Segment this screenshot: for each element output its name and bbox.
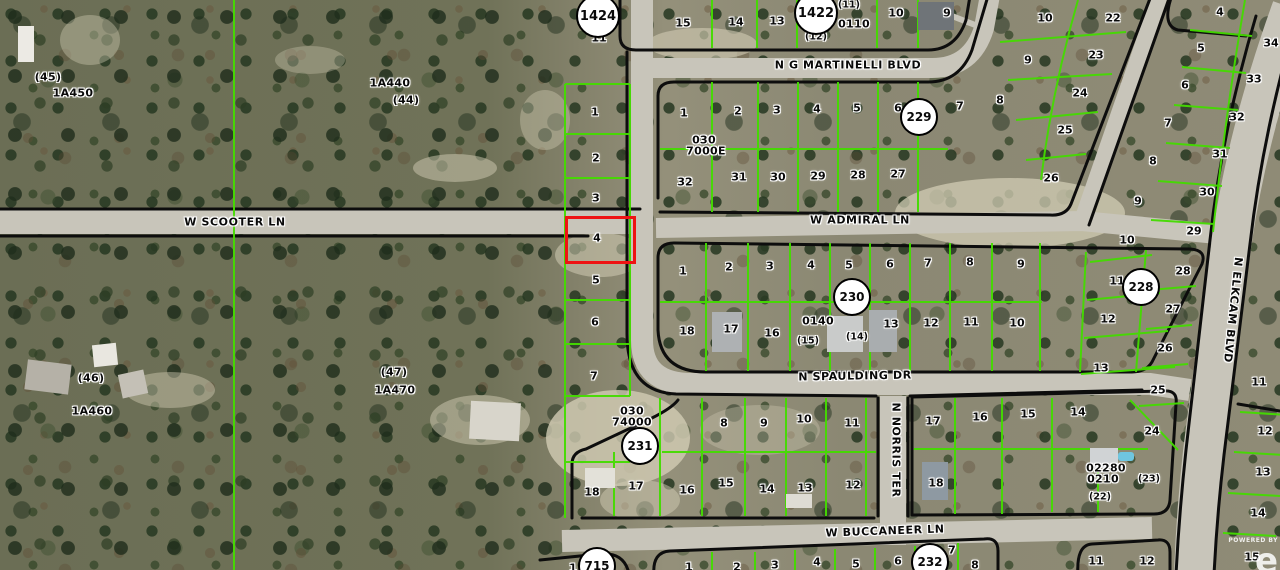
lot-number: 10 — [1119, 234, 1134, 247]
lot-number: 18 — [584, 486, 599, 499]
parcel-map: 11151413(11)(12)109102292382425264345336… — [0, 0, 1280, 570]
area-label: 1A450 — [53, 87, 94, 100]
lot-number: 16 — [679, 484, 694, 497]
area-label: 0110 — [838, 18, 870, 31]
lot-number: 6 — [886, 258, 894, 271]
lot-number: 10 — [796, 413, 811, 426]
lot-number: 31 — [731, 171, 746, 184]
lot-number: 32 — [1229, 111, 1244, 124]
lot-number: 3 — [771, 559, 779, 570]
lot-number: 16 — [764, 327, 779, 340]
area-label: (45) — [35, 71, 62, 84]
lot-number: (14) — [846, 332, 868, 343]
lot-number: 2 — [734, 105, 742, 118]
lot-number: 9 — [1024, 54, 1032, 67]
lot-number: 16 — [972, 411, 987, 424]
lot-number: 13 — [1093, 362, 1108, 375]
lot-number: 9 — [760, 417, 768, 430]
lot-number: 29 — [1186, 225, 1201, 238]
lot-number: 7 — [590, 370, 598, 383]
street-label: W ADMIRAL LN — [810, 214, 910, 227]
lot-number: 26 — [1157, 342, 1172, 355]
lot-number: 12 — [923, 317, 938, 330]
lot-number: 5 — [853, 102, 861, 115]
lot-number: 5 — [852, 558, 860, 570]
lot-number: 13 — [1255, 466, 1270, 479]
street-label: W SCOOTER LN — [184, 216, 285, 229]
lot-number: 34 — [1263, 37, 1278, 50]
lot-number: 3 — [773, 104, 781, 117]
lot-number: 5 — [845, 259, 853, 272]
lot-number: 10 — [888, 7, 903, 20]
lot-number: 23 — [1088, 49, 1103, 62]
lot-number: 7 — [956, 100, 964, 113]
lot-number: 1 — [679, 265, 687, 278]
lot-number: 11 — [963, 316, 978, 329]
lot-number: 30 — [1199, 186, 1214, 199]
lot-number: 12 — [1257, 425, 1272, 438]
lot-number: 11 — [1251, 376, 1266, 389]
lot-number: 5 — [1197, 42, 1205, 55]
lot-number: 13 — [769, 15, 784, 28]
lot-number: 4 — [807, 259, 815, 272]
area-label: 1A460 — [72, 405, 113, 418]
lot-number: 18 — [928, 477, 943, 490]
lot-number: 30 — [770, 171, 785, 184]
lot-number: (15) — [797, 336, 819, 347]
lot-number: 5 — [592, 274, 600, 287]
lot-number: 29 — [810, 170, 825, 183]
lot-number: 2 — [592, 152, 600, 165]
lot-number: 1 — [591, 106, 599, 119]
lot-number: 15 — [675, 17, 690, 30]
lot-number: 24 — [1144, 425, 1159, 438]
lot-number: 8 — [966, 256, 974, 269]
lot-number: 9 — [1134, 195, 1142, 208]
lot-number: 12 — [1139, 555, 1154, 568]
lot-number: 8 — [996, 94, 1004, 107]
lot-number: 1 — [680, 107, 688, 120]
area-label: 1A470 — [375, 384, 416, 397]
parcel-badge: 228 — [1122, 268, 1160, 306]
street-label: N SPAULDING DR — [798, 369, 912, 384]
lot-number: 17 — [723, 323, 738, 336]
lot-number: 9 — [1017, 258, 1025, 271]
lot-number: 1 — [685, 561, 693, 570]
lot-number: 14 — [1250, 507, 1265, 520]
lot-number: 2 — [733, 561, 741, 570]
mls-logo: e — [1228, 544, 1278, 570]
lot-number: 4 — [813, 556, 821, 569]
lot-number: 10 — [1037, 12, 1052, 25]
lot-number: 4 — [813, 103, 821, 116]
lot-number: 3 — [592, 192, 600, 205]
area-label: 0140 — [802, 315, 834, 328]
area-label: (47) — [381, 366, 408, 379]
lot-number: 28 — [1175, 265, 1190, 278]
lot-number: 25 — [1150, 384, 1165, 397]
area-label: (46) — [78, 372, 105, 385]
lot-number: (11) — [838, 0, 860, 11]
lot-number: 15 — [1020, 408, 1035, 421]
area-label: 1A440 — [370, 77, 411, 90]
lot-number: 1 — [569, 562, 577, 570]
lot-number: 14 — [759, 483, 774, 496]
parcel-badge: 230 — [833, 278, 871, 316]
lot-number: 25 — [1057, 124, 1072, 137]
lot-number: 13 — [883, 318, 898, 331]
lot-number: 6 — [894, 555, 902, 568]
lot-number: 27 — [890, 168, 905, 181]
lot-number: 22 — [1105, 12, 1120, 25]
lot-number: 6 — [591, 316, 599, 329]
parcel-badge: 231 — [621, 427, 659, 465]
lot-number: 24 — [1072, 87, 1087, 100]
lot-number: 7 — [924, 257, 932, 270]
area-label: (44) — [393, 94, 420, 107]
lot-number: 14 — [1070, 406, 1085, 419]
subject-parcel-highlight[interactable] — [565, 216, 636, 264]
lot-number: 9 — [943, 7, 951, 20]
area-label: 0210 — [1087, 473, 1119, 486]
lot-number: 10 — [1009, 317, 1024, 330]
lot-number: 12 — [845, 479, 860, 492]
lot-number: 12 — [1100, 313, 1115, 326]
lot-number: 11 — [1088, 555, 1103, 568]
lot-number: 32 — [677, 176, 692, 189]
lot-number: 26 — [1043, 172, 1058, 185]
lot-number: 3 — [766, 260, 774, 273]
mls-watermark: POWERED BY e — [1228, 538, 1278, 570]
lot-number: (23) — [1138, 474, 1160, 485]
lot-number: 2 — [725, 261, 733, 274]
lot-number: 18 — [679, 325, 694, 338]
lot-number: 8 — [720, 417, 728, 430]
street-label: N G MARTINELLI BLVD — [775, 59, 922, 72]
area-label: 7000E — [686, 145, 726, 158]
lot-number: 11 — [844, 417, 859, 430]
lot-number: 17 — [925, 415, 940, 428]
lot-number: 13 — [797, 482, 812, 495]
lot-number: 8 — [1149, 155, 1157, 168]
area-label: 74000 — [612, 416, 652, 429]
lot-number: 6 — [1181, 79, 1189, 92]
lot-number: 33 — [1246, 73, 1261, 86]
lot-number: 17 — [628, 480, 643, 493]
lot-number: (22) — [1089, 492, 1111, 503]
lot-number: 7 — [1164, 117, 1172, 130]
lot-number: 15 — [718, 477, 733, 490]
lot-number: 28 — [850, 169, 865, 182]
parcel-badge: 229 — [900, 98, 938, 136]
lot-number: 8 — [971, 559, 979, 570]
lot-number: 27 — [1165, 303, 1180, 316]
swimming-pool — [1118, 452, 1134, 461]
lot-number: 31 — [1212, 148, 1227, 161]
lot-number: 7 — [948, 544, 956, 557]
street-label: N NORRIS TER — [890, 402, 903, 497]
lot-number: 4 — [1216, 6, 1224, 19]
lot-number: 14 — [728, 16, 743, 29]
